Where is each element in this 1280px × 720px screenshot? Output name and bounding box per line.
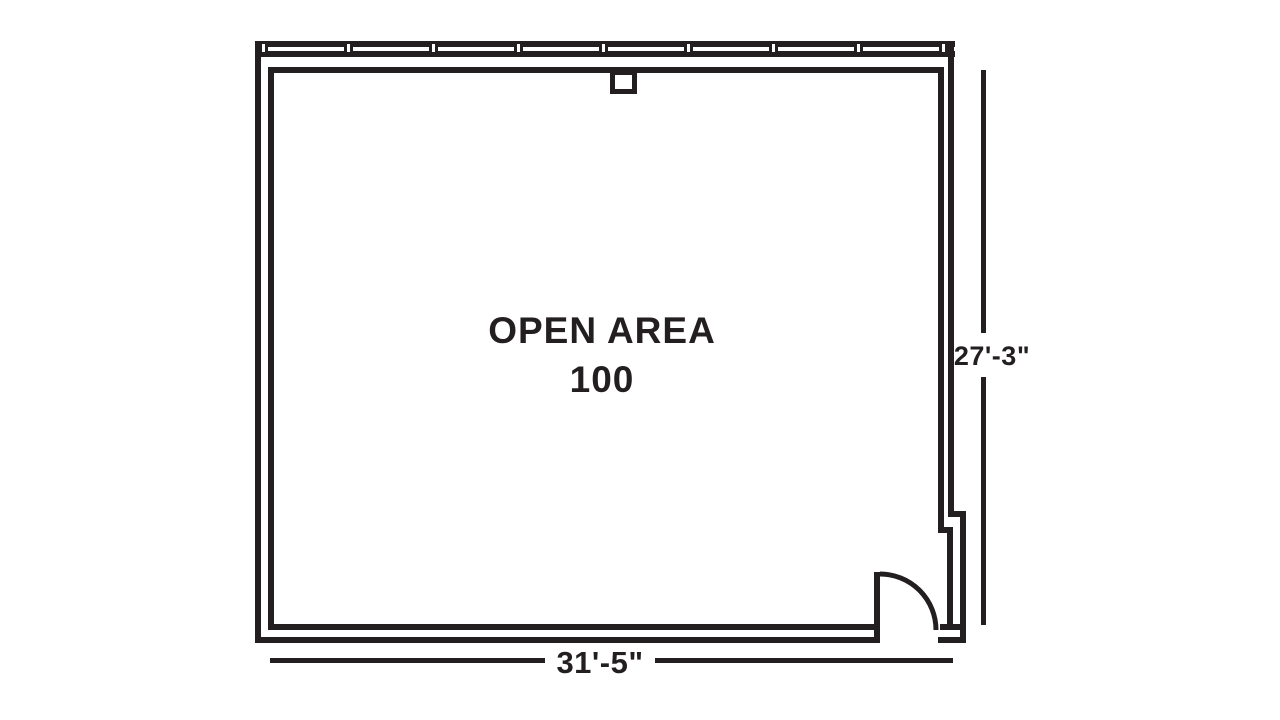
mullion-glass-slit (857, 44, 860, 52)
window-mullion (514, 41, 523, 57)
wall-bottom-inner-left (268, 624, 880, 630)
window-mullion (854, 41, 863, 57)
door-swing-arc (855, 550, 955, 650)
window-mullion (429, 41, 438, 57)
column (610, 70, 637, 94)
wall-right-inner-upper (938, 67, 944, 533)
height-dimension-label: 27'-3" (950, 341, 1034, 372)
mullion-glass-slit (602, 44, 605, 52)
mullion-glass-slit (942, 44, 945, 52)
window-mullion (344, 41, 353, 57)
width-dimension-line-right (655, 658, 953, 663)
wall-right-outer-upper (948, 41, 954, 517)
wall-bottom-outer-left (255, 637, 880, 643)
mullion-glass-slit (687, 44, 690, 52)
wall-left-outer (255, 41, 261, 643)
mullion-glass-slit (517, 44, 520, 52)
mullion-glass-slit (772, 44, 775, 52)
width-dimension-line-left (270, 658, 545, 663)
room-number: 100 (400, 355, 804, 404)
window-mullion (599, 41, 608, 57)
room-name: OPEN AREA (400, 306, 804, 355)
width-dimension-label: 31'-5" (520, 645, 680, 681)
mullion-glass-slit (347, 44, 350, 52)
window-mullion (684, 41, 693, 57)
mullion-glass-slit (262, 44, 265, 52)
window-mullion (939, 41, 948, 57)
wall-left-inner (268, 67, 274, 630)
floor-plan: OPEN AREA 100 27'-3" 31'-5" (0, 0, 1280, 720)
height-dimension-line-upper (981, 70, 986, 333)
mullion-glass-slit (432, 44, 435, 52)
wall-top-inner (268, 67, 944, 73)
room-label: OPEN AREA 100 (400, 306, 804, 404)
window-mullion (769, 41, 778, 57)
window-wall (255, 41, 955, 57)
height-dimension-line-lower (981, 377, 986, 625)
